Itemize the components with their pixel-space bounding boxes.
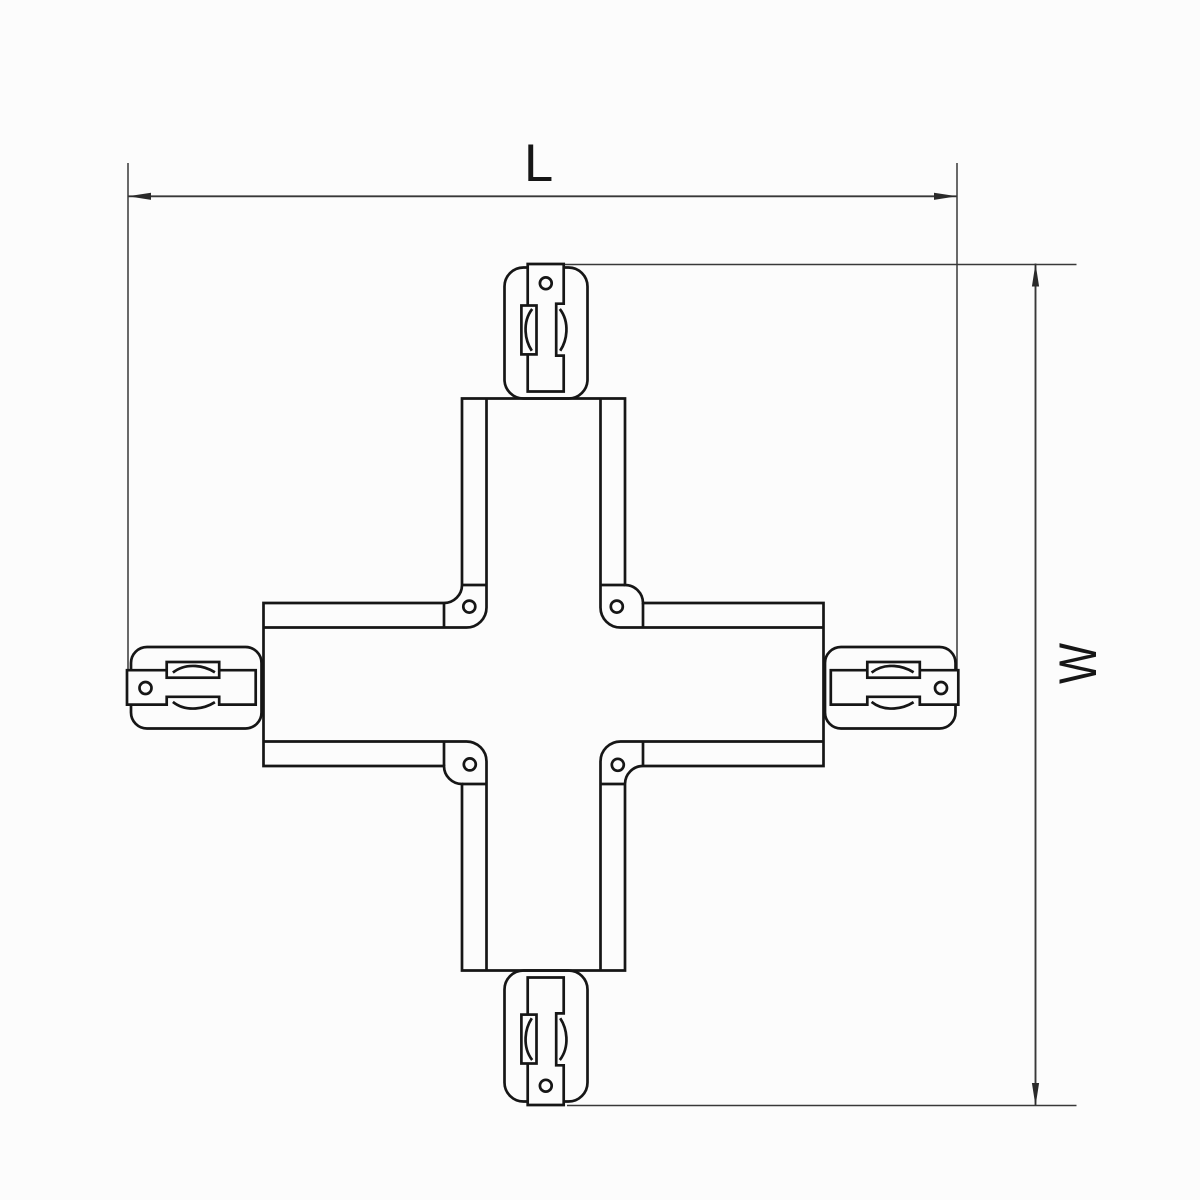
svg-text:W: W [1049, 643, 1108, 684]
svg-text:L: L [524, 134, 553, 193]
